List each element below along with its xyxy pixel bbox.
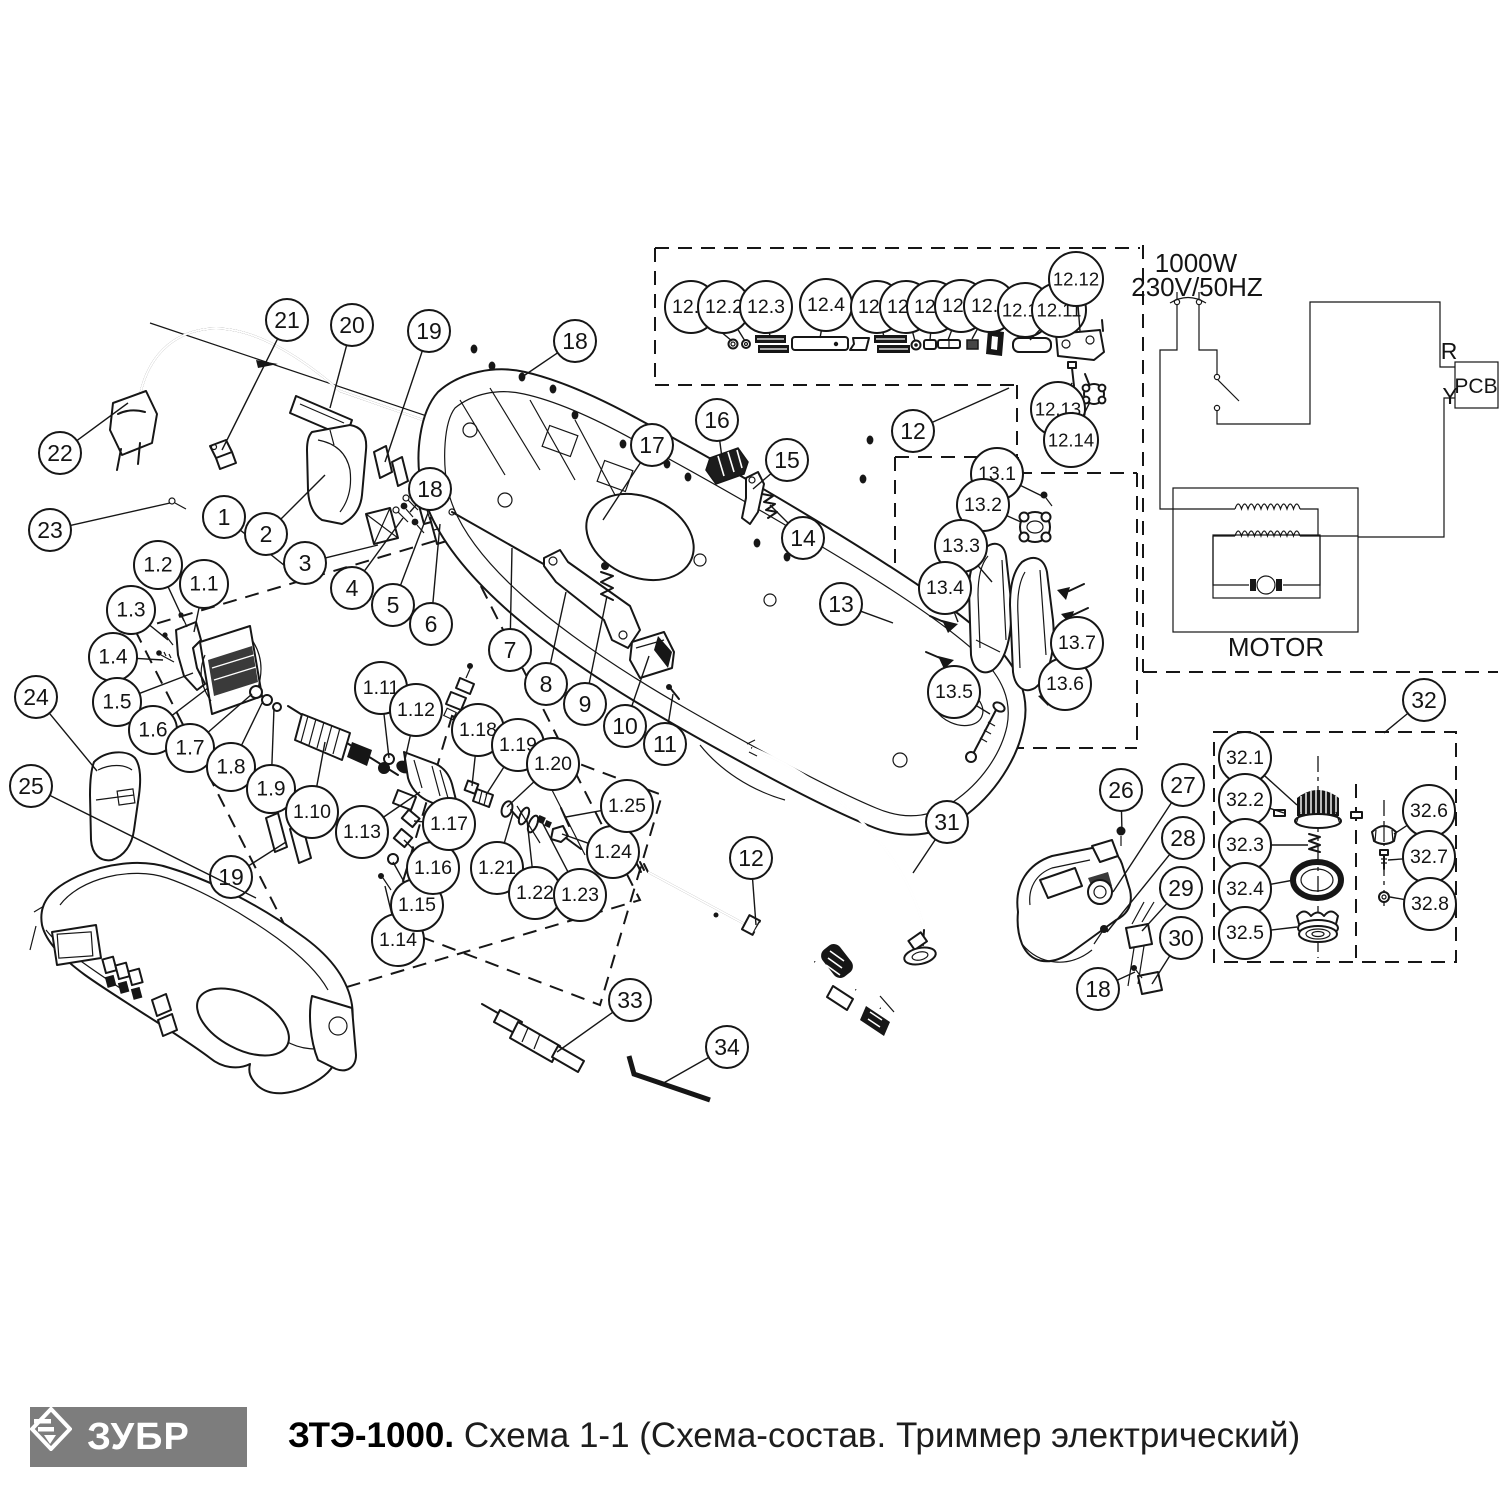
callout-number-1.25: 1.25 [608, 795, 646, 817]
callout-number-23: 23 [37, 517, 63, 543]
callout-1.3: 1.3 [107, 586, 168, 640]
electrical-schematic: 1000W 230V/50HZ R Y PCB MOTOR [1131, 248, 1498, 662]
service-tool-33 [482, 1004, 584, 1072]
callout-number-18: 18 [1085, 976, 1111, 1002]
callout-number-20: 20 [339, 312, 365, 338]
callout-number-34: 34 [714, 1034, 740, 1060]
callout-32.6: 32.6 [1394, 785, 1455, 837]
callout-number-1.13: 1.13 [343, 821, 381, 843]
callout-number-22: 22 [47, 440, 73, 466]
callout-number-1.21: 1.21 [478, 857, 516, 879]
footer: ЗУБР ЗТЭ-1000. Схема 1-1 (Схема-состав. … [0, 1402, 1500, 1480]
callout-number-1.1: 1.1 [189, 573, 218, 596]
bracket-1-1 [176, 622, 205, 690]
callout-leader-1.4 [137, 658, 163, 660]
callout-12: 12 [892, 388, 1009, 452]
callout-21: 21 [222, 299, 308, 450]
callout-leader-34 [660, 1057, 709, 1085]
callout-number-1.14: 1.14 [379, 929, 417, 951]
callout-18: 18 [1077, 968, 1135, 1010]
callout-number-1.17: 1.17 [430, 813, 468, 835]
boom-shaft-12 [637, 862, 894, 1036]
motor-label: MOTOR [1228, 632, 1324, 662]
callout-26: 26 [1100, 769, 1142, 833]
callout-number-13.2: 13.2 [964, 494, 1002, 516]
callout-leader-18 [522, 353, 558, 377]
callout-34: 34 [660, 1026, 748, 1085]
callout-leader-24 [49, 713, 97, 771]
callout-13.7: 13.7 [1051, 617, 1103, 669]
part-1-19 [473, 789, 493, 807]
side-cover-24 [90, 752, 140, 860]
wire-r-label: R [1441, 338, 1458, 364]
brush-right [1276, 579, 1282, 591]
callout-number-1.22: 1.22 [516, 882, 554, 904]
ring-32-4 [1293, 862, 1341, 898]
callout-number-30: 30 [1168, 925, 1194, 951]
callout-leader-26 [1121, 811, 1122, 833]
pcb-label: PCB [1454, 375, 1497, 398]
callout-leader-33 [557, 1012, 613, 1052]
cutter-plate-30 [1138, 972, 1162, 994]
callout-leader-32.6 [1394, 825, 1407, 834]
callout-number-1.8: 1.8 [216, 756, 245, 779]
motor-inner-box [1213, 535, 1320, 598]
end-fitting [860, 1006, 890, 1036]
callout-number-1.10: 1.10 [293, 801, 331, 823]
callout-number-1.4: 1.4 [98, 646, 128, 669]
box-schematic [1143, 245, 1498, 672]
callout-12.3: 12.3 [740, 281, 792, 337]
clamp-12-5 [874, 335, 910, 353]
callout-number-19: 19 [416, 318, 442, 344]
callout-15: 15 [753, 439, 808, 489]
callout-number-2: 2 [260, 521, 273, 547]
callout-number-28: 28 [1170, 825, 1196, 851]
callout-20: 20 [330, 304, 373, 408]
callout-number-18: 18 [417, 476, 443, 502]
callout-number-12.4: 12.4 [807, 294, 845, 316]
callout-number-5: 5 [387, 592, 400, 618]
callout-number-1.9: 1.9 [256, 778, 285, 801]
tube-12-4 [792, 337, 869, 350]
callout-leader-32.5 [1271, 927, 1297, 930]
field-winding-1 [1235, 504, 1300, 509]
part-1-17 [402, 810, 420, 827]
callout-number-11: 11 [653, 731, 677, 757]
callout-16: 16 [696, 399, 738, 458]
callout-number-1.12: 1.12 [397, 699, 435, 721]
callout-number-32.6: 32.6 [1410, 800, 1448, 822]
callout-leader-12.9 [972, 329, 978, 339]
callout-number-1.18: 1.18 [459, 719, 497, 741]
callout-number-4: 4 [346, 575, 359, 601]
washer-1-7 [250, 686, 262, 698]
callout-number-9: 9 [579, 691, 592, 717]
knob-13-2 [1020, 512, 1051, 542]
callout-number-31: 31 [934, 809, 960, 835]
pads-19-top [374, 446, 408, 486]
wire-to-pcb-r [1217, 302, 1455, 424]
callout-number-17: 17 [639, 432, 665, 458]
chain-1-18-1-25 [465, 781, 585, 855]
callout-number-27: 27 [1170, 772, 1196, 798]
callout-32.4: 32.4 [1219, 863, 1294, 915]
callout-leader-20 [330, 345, 347, 408]
washer-1-8 [262, 695, 272, 705]
callout-number-32.2: 32.2 [1226, 789, 1264, 811]
callout-1.4: 1.4 [89, 633, 163, 681]
callout-leader-1.20 [507, 782, 534, 807]
callout-number-1.23: 1.23 [561, 884, 599, 906]
callout-number-16: 16 [704, 407, 730, 433]
callout-number-32.1: 32.1 [1226, 747, 1264, 769]
callout-number-12: 12 [900, 418, 926, 444]
washer-12-1 [729, 340, 738, 349]
voltage-label: 230V/50HZ [1131, 272, 1263, 302]
callout-leader-3 [325, 545, 378, 558]
pin-23 [169, 498, 186, 509]
callout-number-1.16: 1.16 [414, 857, 452, 879]
callout-18: 18 [522, 320, 596, 377]
callout-leader-1.5 [139, 673, 193, 693]
part-1-24-nut [551, 826, 568, 842]
page: 1000W 230V/50HZ R Y PCB MOTOR [0, 0, 1500, 1500]
callout-number-32.4: 32.4 [1226, 878, 1264, 900]
shaft-clamp [827, 986, 853, 1010]
callout-number-21: 21 [274, 307, 300, 333]
plug-body [110, 391, 157, 455]
callout-number-3: 3 [299, 550, 312, 576]
callout-number-12.2: 12.2 [705, 296, 743, 318]
callout-number-13: 13 [828, 591, 854, 617]
callout-number-6: 6 [425, 611, 438, 637]
washer-32-8 [1379, 892, 1389, 902]
callout-number-1.20: 1.20 [534, 753, 572, 775]
callout-32: 32 [1384, 679, 1445, 733]
cap-32-6 [1372, 826, 1396, 844]
callout-leader-12.8 [948, 330, 952, 340]
callout-number-24: 24 [23, 684, 49, 710]
knob-12-14 [1083, 374, 1106, 404]
callout-number-1.15: 1.15 [398, 894, 436, 916]
callout-number-29: 29 [1168, 875, 1194, 901]
callout-number-12.3: 12.3 [747, 296, 785, 318]
callout-leader-19 [249, 842, 286, 866]
cam-lock-lever [818, 941, 856, 981]
stator-1-6 [200, 626, 262, 714]
callout-leader-32.8 [1390, 897, 1404, 900]
bracket-12-10 [986, 330, 1004, 356]
callout-number-32.5: 32.5 [1226, 922, 1264, 944]
spool-32-5 [1297, 912, 1338, 943]
armature-symbol [1257, 576, 1275, 594]
callout-leader-21 [222, 339, 278, 450]
callout-number-1.6: 1.6 [138, 719, 167, 742]
callout-leader-1.17 [414, 821, 423, 822]
armature-leads [1213, 536, 1320, 585]
callout-number-32.3: 32.3 [1226, 834, 1264, 856]
callout-leader-1.19 [486, 767, 504, 795]
callout-number-32.7: 32.7 [1410, 846, 1448, 868]
callout-number-14: 14 [790, 525, 816, 551]
callout-leader-1.8 [241, 701, 263, 745]
cable-clamp-21 [210, 440, 236, 469]
callout-leader-12.2 [738, 329, 745, 341]
callout-number-33: 33 [617, 987, 643, 1013]
wire-right [1199, 305, 1217, 374]
wire-to-pcb-y [1358, 398, 1455, 537]
callout-number-1.3: 1.3 [116, 599, 145, 622]
pin-32-2-right [1351, 812, 1362, 818]
callout-1.17: 1.17 [414, 798, 475, 850]
brush-left [1250, 579, 1256, 591]
trimmer-head-32 [1274, 790, 1396, 942]
callout-30: 30 [1152, 917, 1202, 984]
contact-plate-3 [366, 508, 398, 544]
callout-number-10: 10 [612, 713, 638, 739]
callout-32.5: 32.5 [1219, 907, 1297, 959]
drawing-title: ЗТЭ-1000. Схема 1-1 (Схема-состав. Тримм… [288, 1416, 1300, 1456]
switch-blade [1218, 380, 1239, 401]
callout-number-1.5: 1.5 [102, 691, 131, 714]
callout-number-13.7: 13.7 [1058, 632, 1096, 654]
callout-leader-12 [932, 388, 1009, 422]
callout-leader-31 [913, 839, 935, 873]
callout-leader-23 [70, 503, 170, 525]
hex-key-34 [629, 1056, 710, 1100]
callout-number-26: 26 [1108, 777, 1134, 803]
callout-number-12.12: 12.12 [1053, 269, 1099, 290]
callout-number-12: 12 [738, 845, 764, 871]
switch-contact-bottom [1214, 405, 1219, 410]
bolt-26 [1117, 827, 1126, 836]
callout-32.3: 32.3 [1219, 819, 1308, 871]
callout-number-13.4: 13.4 [926, 577, 964, 599]
callout-number-1.24: 1.24 [594, 841, 632, 863]
callout-leader-32 [1384, 713, 1408, 733]
zubr-logo-icon [30, 1407, 72, 1451]
drawing-title-description: Схема 1-1 (Схема-состав. Триммер электри… [454, 1416, 1300, 1455]
callout-leader-19 [385, 351, 422, 462]
callout-leader-1.15 [393, 862, 404, 882]
callout-number-25: 25 [18, 773, 44, 799]
callout-number-7: 7 [504, 637, 517, 663]
callout-leader-1.6 [172, 688, 208, 715]
callout-32.2: 32.2 [1219, 774, 1284, 826]
callout-32.7: 32.7 [1388, 831, 1455, 883]
switch-contact-top [1214, 374, 1219, 379]
zubr-logo: ЗУБР [30, 1407, 247, 1467]
callout-number-15: 15 [774, 447, 800, 473]
spool-housing-32-1 [1295, 790, 1341, 828]
exploded-parts-diagram: 1000W 230V/50HZ R Y PCB MOTOR [0, 0, 1500, 1400]
callout-number-32: 32 [1411, 687, 1437, 713]
callout-12.4: 12.4 [800, 279, 852, 338]
callout-number-32.8: 32.8 [1411, 893, 1449, 915]
callout-leader-32.7 [1388, 859, 1403, 860]
screw-13-1 [1041, 492, 1048, 499]
callout-leader-1.18 [472, 756, 475, 786]
callout-1.12: 1.12 [390, 684, 442, 764]
callout-number-8: 8 [540, 671, 553, 697]
drawing-title-model: ЗТЭ-1000. [288, 1416, 454, 1455]
callout-12: 12 [730, 837, 772, 925]
screw-32-7 [1380, 850, 1388, 869]
armature-1-10 [288, 706, 398, 775]
callout-number-12.14: 12.14 [1048, 430, 1094, 451]
guard-shroud-27 [1017, 848, 1131, 962]
callout-leader-1.9 [272, 708, 274, 765]
callout-leader-13.1 [1020, 485, 1042, 496]
callout-leader-1.11 [384, 714, 389, 758]
motor-cover-2 [307, 425, 366, 524]
callout-number-18: 18 [562, 328, 588, 354]
clamp-12-3 [755, 335, 789, 353]
callout-1.1: 1.1 [180, 560, 228, 632]
callout-1.25: 1.25 [566, 780, 653, 832]
callout-number-13.5: 13.5 [935, 681, 973, 703]
callout-24: 24 [15, 676, 97, 771]
screw-12-13 [1068, 362, 1076, 386]
washer-12-2 [742, 340, 750, 348]
sleeve-12-7 [924, 340, 936, 349]
callout-leader-18 [1117, 972, 1135, 980]
callout-number-1.7: 1.7 [175, 737, 204, 760]
callout-number-13.6: 13.6 [1046, 673, 1084, 695]
callout-leader-12.7 [930, 333, 931, 340]
callout-number-13.3: 13.3 [942, 535, 980, 557]
callout-leader-12.6 [913, 332, 915, 341]
callout-number-1: 1 [218, 504, 231, 530]
zubr-logo-text: ЗУБР [87, 1418, 190, 1456]
nut-12-9 [967, 340, 978, 349]
tube-12-11 [1013, 338, 1051, 352]
lower-housing-25 [30, 863, 356, 1093]
callout-32.8: 32.8 [1390, 878, 1456, 930]
callout-leader-30 [1152, 956, 1170, 984]
callout-number-1.2: 1.2 [143, 554, 172, 577]
wire-left [1160, 305, 1235, 509]
